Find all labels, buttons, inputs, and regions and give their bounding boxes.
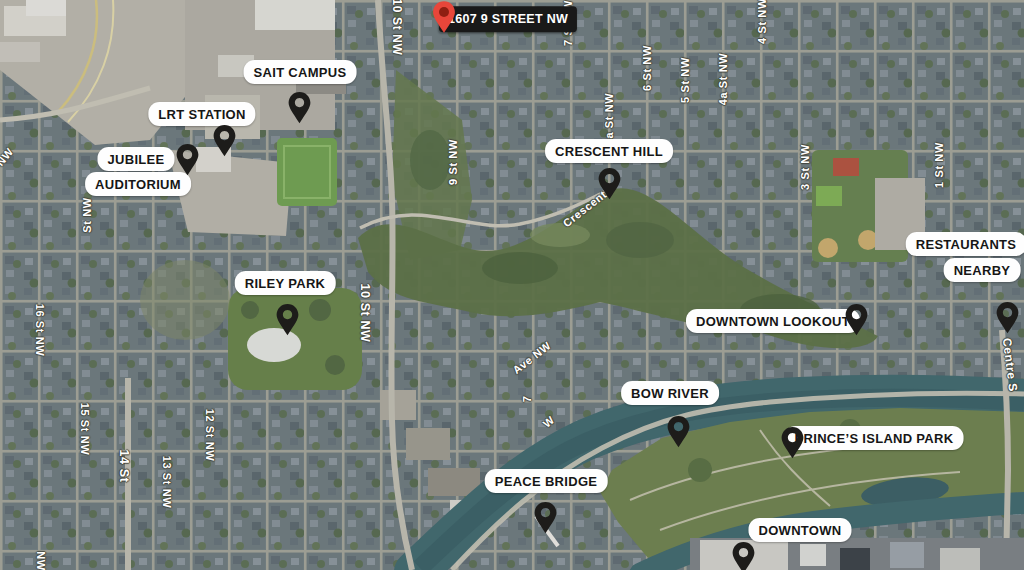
street-label: 4a St NW [718, 53, 729, 105]
street-label: 13 St NW [161, 456, 172, 508]
peace-bridge-pin[interactable] [533, 500, 558, 535]
riley-park-pin[interactable] [275, 302, 300, 337]
street-label: 1 St NW [934, 142, 945, 188]
street-label: 3 St NW [800, 144, 811, 190]
black-map-pin-icon [780, 425, 805, 460]
street-label: 4 St NW [757, 0, 768, 44]
street-label: St NW [82, 197, 93, 232]
black-map-pin-icon [995, 300, 1020, 335]
black-map-pin-icon [212, 123, 237, 158]
princes-island-park-label: PRINCE’S ISLAND PARK [785, 426, 964, 450]
downtown-lookout-pin[interactable] [844, 302, 869, 337]
red-map-pin-icon [430, 0, 458, 34]
bow-river-pin[interactable] [666, 414, 691, 449]
sait-campus-label: SAIT CAMPUS [244, 60, 357, 84]
street-label: 5 St NW [680, 57, 691, 103]
black-map-pin-icon [287, 90, 312, 125]
street-label: 9 St NW [448, 139, 459, 185]
restaurants-nearby-label: NEARBY [944, 258, 1021, 282]
street-label: 16 St NW [34, 304, 45, 356]
black-map-pin-icon [844, 302, 869, 337]
lrt-station-label: LRT STATION [148, 102, 255, 126]
princes-island-park-pin[interactable] [780, 425, 805, 460]
restaurants-nearby-label: RESTAURANTS [906, 232, 1024, 256]
crescent-hill-label: CRESCENT HILL [545, 139, 673, 163]
street-label: 12 St NW [204, 409, 215, 461]
black-map-pin-icon [731, 540, 756, 570]
jubilee-auditorium-pin[interactable] [175, 142, 200, 177]
street-label: 14 St [118, 450, 131, 483]
street-label: NW [0, 146, 15, 168]
downtown-lookout-label: DOWNTOWN LOOKOUT [686, 309, 860, 333]
street-label: 7 [522, 396, 533, 403]
street-label: NW [35, 551, 46, 570]
map-annotations-layer: 10 St NW9 St NW7 St NW6 St NW6a St NW5 S… [0, 0, 1024, 570]
peace-bridge-label: PEACE BRIDGE [485, 469, 608, 493]
jubilee-auditorium-label: JUBILEE [97, 147, 174, 171]
address-1607-9-street-nw-pin[interactable] [430, 0, 458, 34]
street-label: 10 St NW [359, 284, 372, 343]
downtown-pin[interactable] [731, 540, 756, 570]
downtown-label: DOWNTOWN [748, 518, 851, 542]
black-map-pin-icon [597, 166, 622, 201]
black-map-pin-icon [666, 414, 691, 449]
address-1607-9-street-nw-label: 1607 9 STREET NW [439, 6, 577, 32]
bow-river-label: BOW RIVER [621, 381, 719, 405]
restaurants-nearby-pin[interactable] [995, 300, 1020, 335]
map-canvas[interactable]: 10 St NW9 St NW7 St NW6 St NW6a St NW5 S… [0, 0, 1024, 570]
street-label: 6 St NW [642, 45, 653, 91]
street-label: 15 St NW [79, 403, 90, 455]
crescent-hill-pin[interactable] [597, 166, 622, 201]
riley-park-label: RILEY PARK [235, 271, 336, 295]
street-label: 6a St NW [604, 93, 615, 145]
street-label: W [541, 414, 556, 429]
black-map-pin-icon [275, 302, 300, 337]
street-label: 10 St NW [391, 0, 403, 55]
black-map-pin-icon [175, 142, 200, 177]
street-label: Ave NW [511, 340, 553, 376]
lrt-station-pin[interactable] [212, 123, 237, 158]
sait-campus-pin[interactable] [287, 90, 312, 125]
black-map-pin-icon [533, 500, 558, 535]
street-label: Centre S [1001, 337, 1020, 392]
